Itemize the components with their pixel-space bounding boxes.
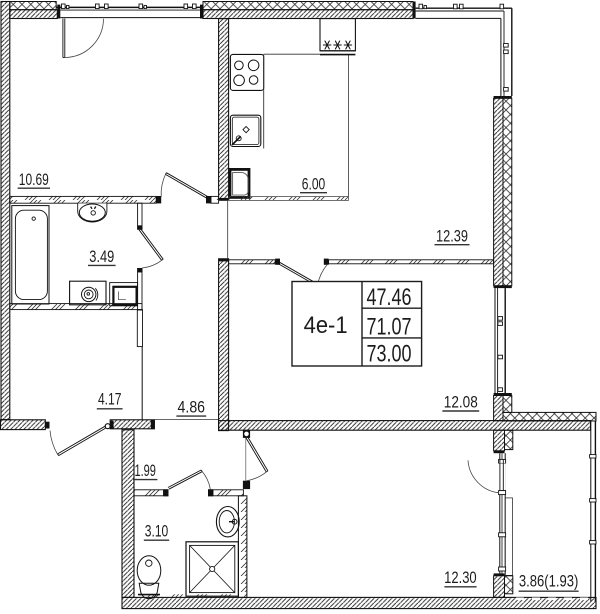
svg-text:6.00: 6.00 — [302, 175, 326, 193]
svg-text:3.49: 3.49 — [89, 248, 114, 266]
svg-text:47.46: 47.46 — [367, 284, 412, 311]
svg-text:10.69: 10.69 — [19, 171, 49, 189]
svg-text:12.30: 12.30 — [444, 569, 477, 587]
svg-text:4е-1: 4е-1 — [304, 312, 348, 339]
svg-text:1.99: 1.99 — [134, 462, 156, 480]
svg-text:73.00: 73.00 — [367, 340, 412, 367]
svg-text:3.86(1.93): 3.86(1.93) — [519, 572, 579, 590]
svg-text:71.07: 71.07 — [367, 313, 412, 340]
svg-text:12.08: 12.08 — [444, 393, 478, 411]
svg-text:3.10: 3.10 — [145, 522, 169, 540]
svg-text:4.17: 4.17 — [98, 390, 122, 408]
svg-text:4.86: 4.86 — [178, 398, 206, 416]
svg-text:12.39: 12.39 — [436, 227, 468, 245]
